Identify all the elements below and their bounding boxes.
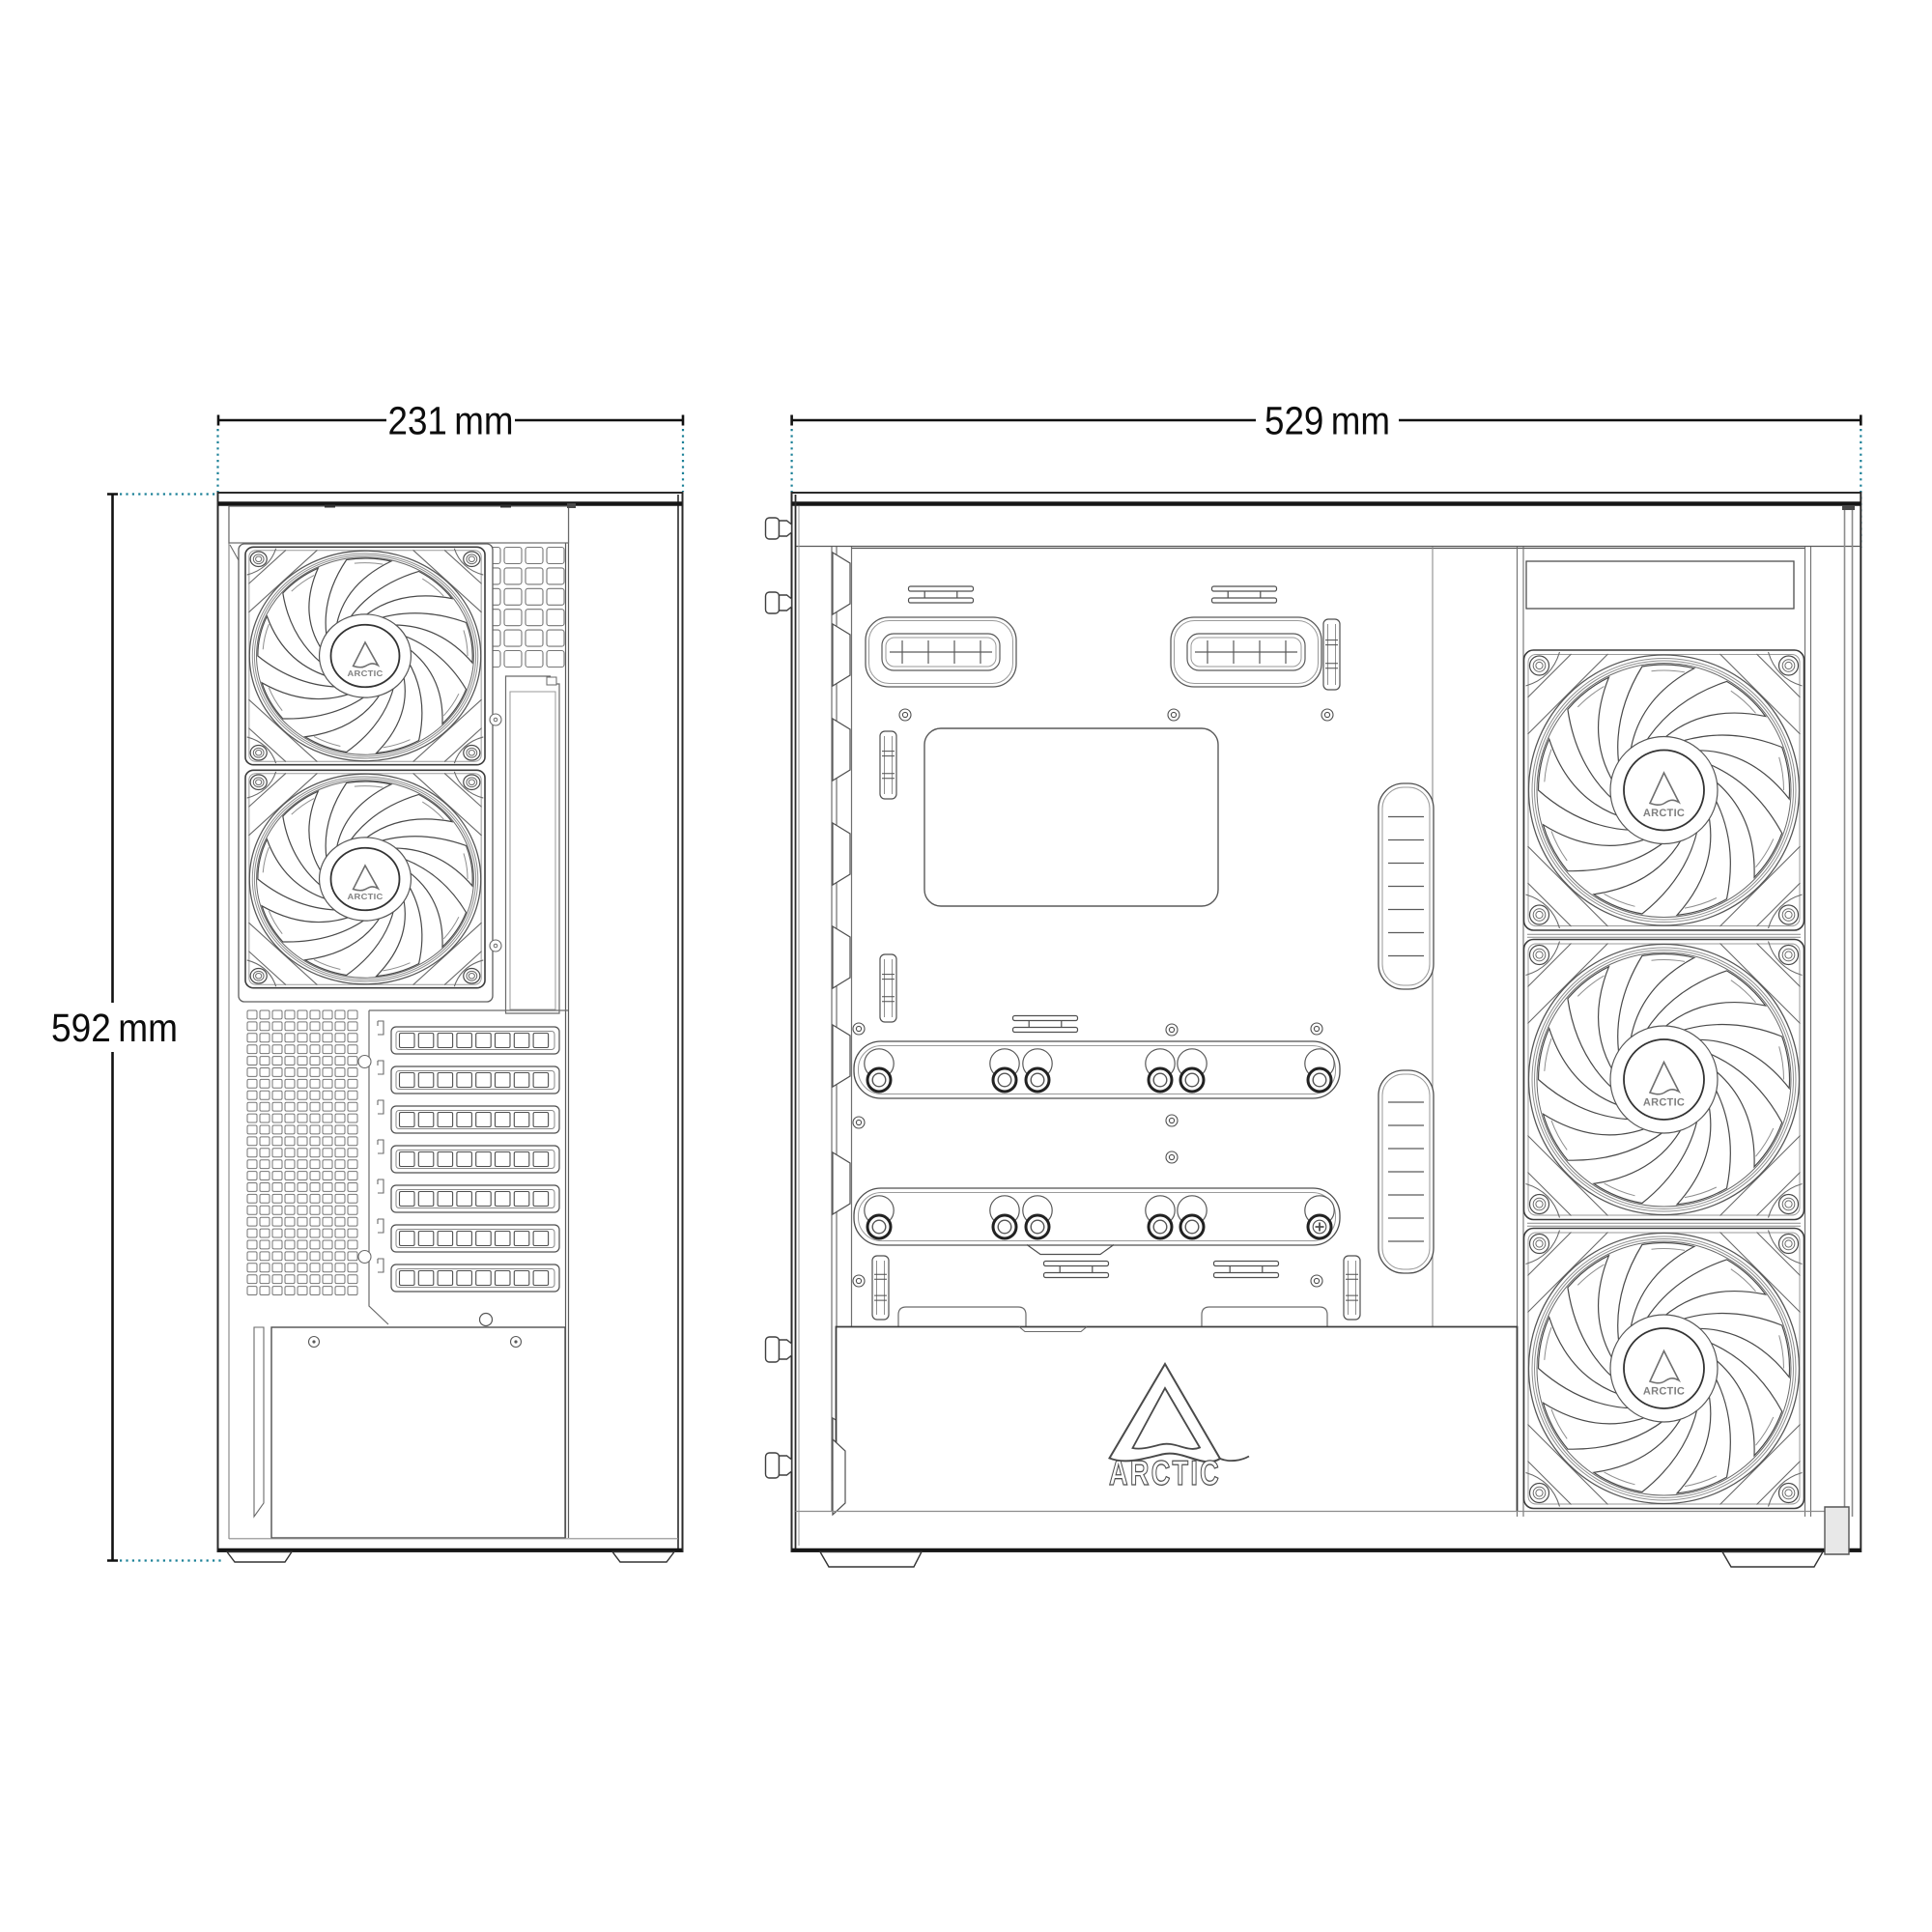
svg-text:231 mm: 231 mm — [388, 399, 514, 443]
svg-text:592 mm: 592 mm — [51, 1006, 178, 1050]
svg-text:ARCTIC: ARCTIC — [1109, 1453, 1221, 1492]
svg-text:529 mm: 529 mm — [1264, 399, 1390, 443]
